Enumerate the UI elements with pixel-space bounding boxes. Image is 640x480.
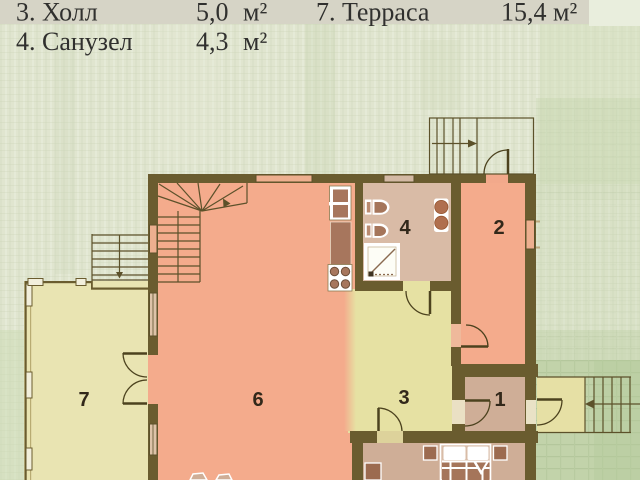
svg-text:3. Холл: 3. Холл [16,0,98,27]
svg-text:3: 3 [398,387,409,409]
svg-text:м²: м² [243,27,267,56]
svg-text:7. Терраса: 7. Терраса [316,0,430,27]
svg-text:4. Санузел: 4. Санузел [16,27,133,56]
svg-text:7: 7 [78,389,89,411]
svg-text:2: 2 [493,217,504,239]
svg-text:4,3: 4,3 [196,27,229,56]
svg-text:1: 1 [494,389,505,411]
svg-text:15,4: 15,4 [501,0,547,27]
svg-text:5,0: 5,0 [196,0,229,27]
svg-text:4: 4 [399,217,411,239]
svg-text:м²: м² [553,0,577,27]
svg-text:6: 6 [252,389,263,411]
svg-text:м²: м² [243,0,267,27]
